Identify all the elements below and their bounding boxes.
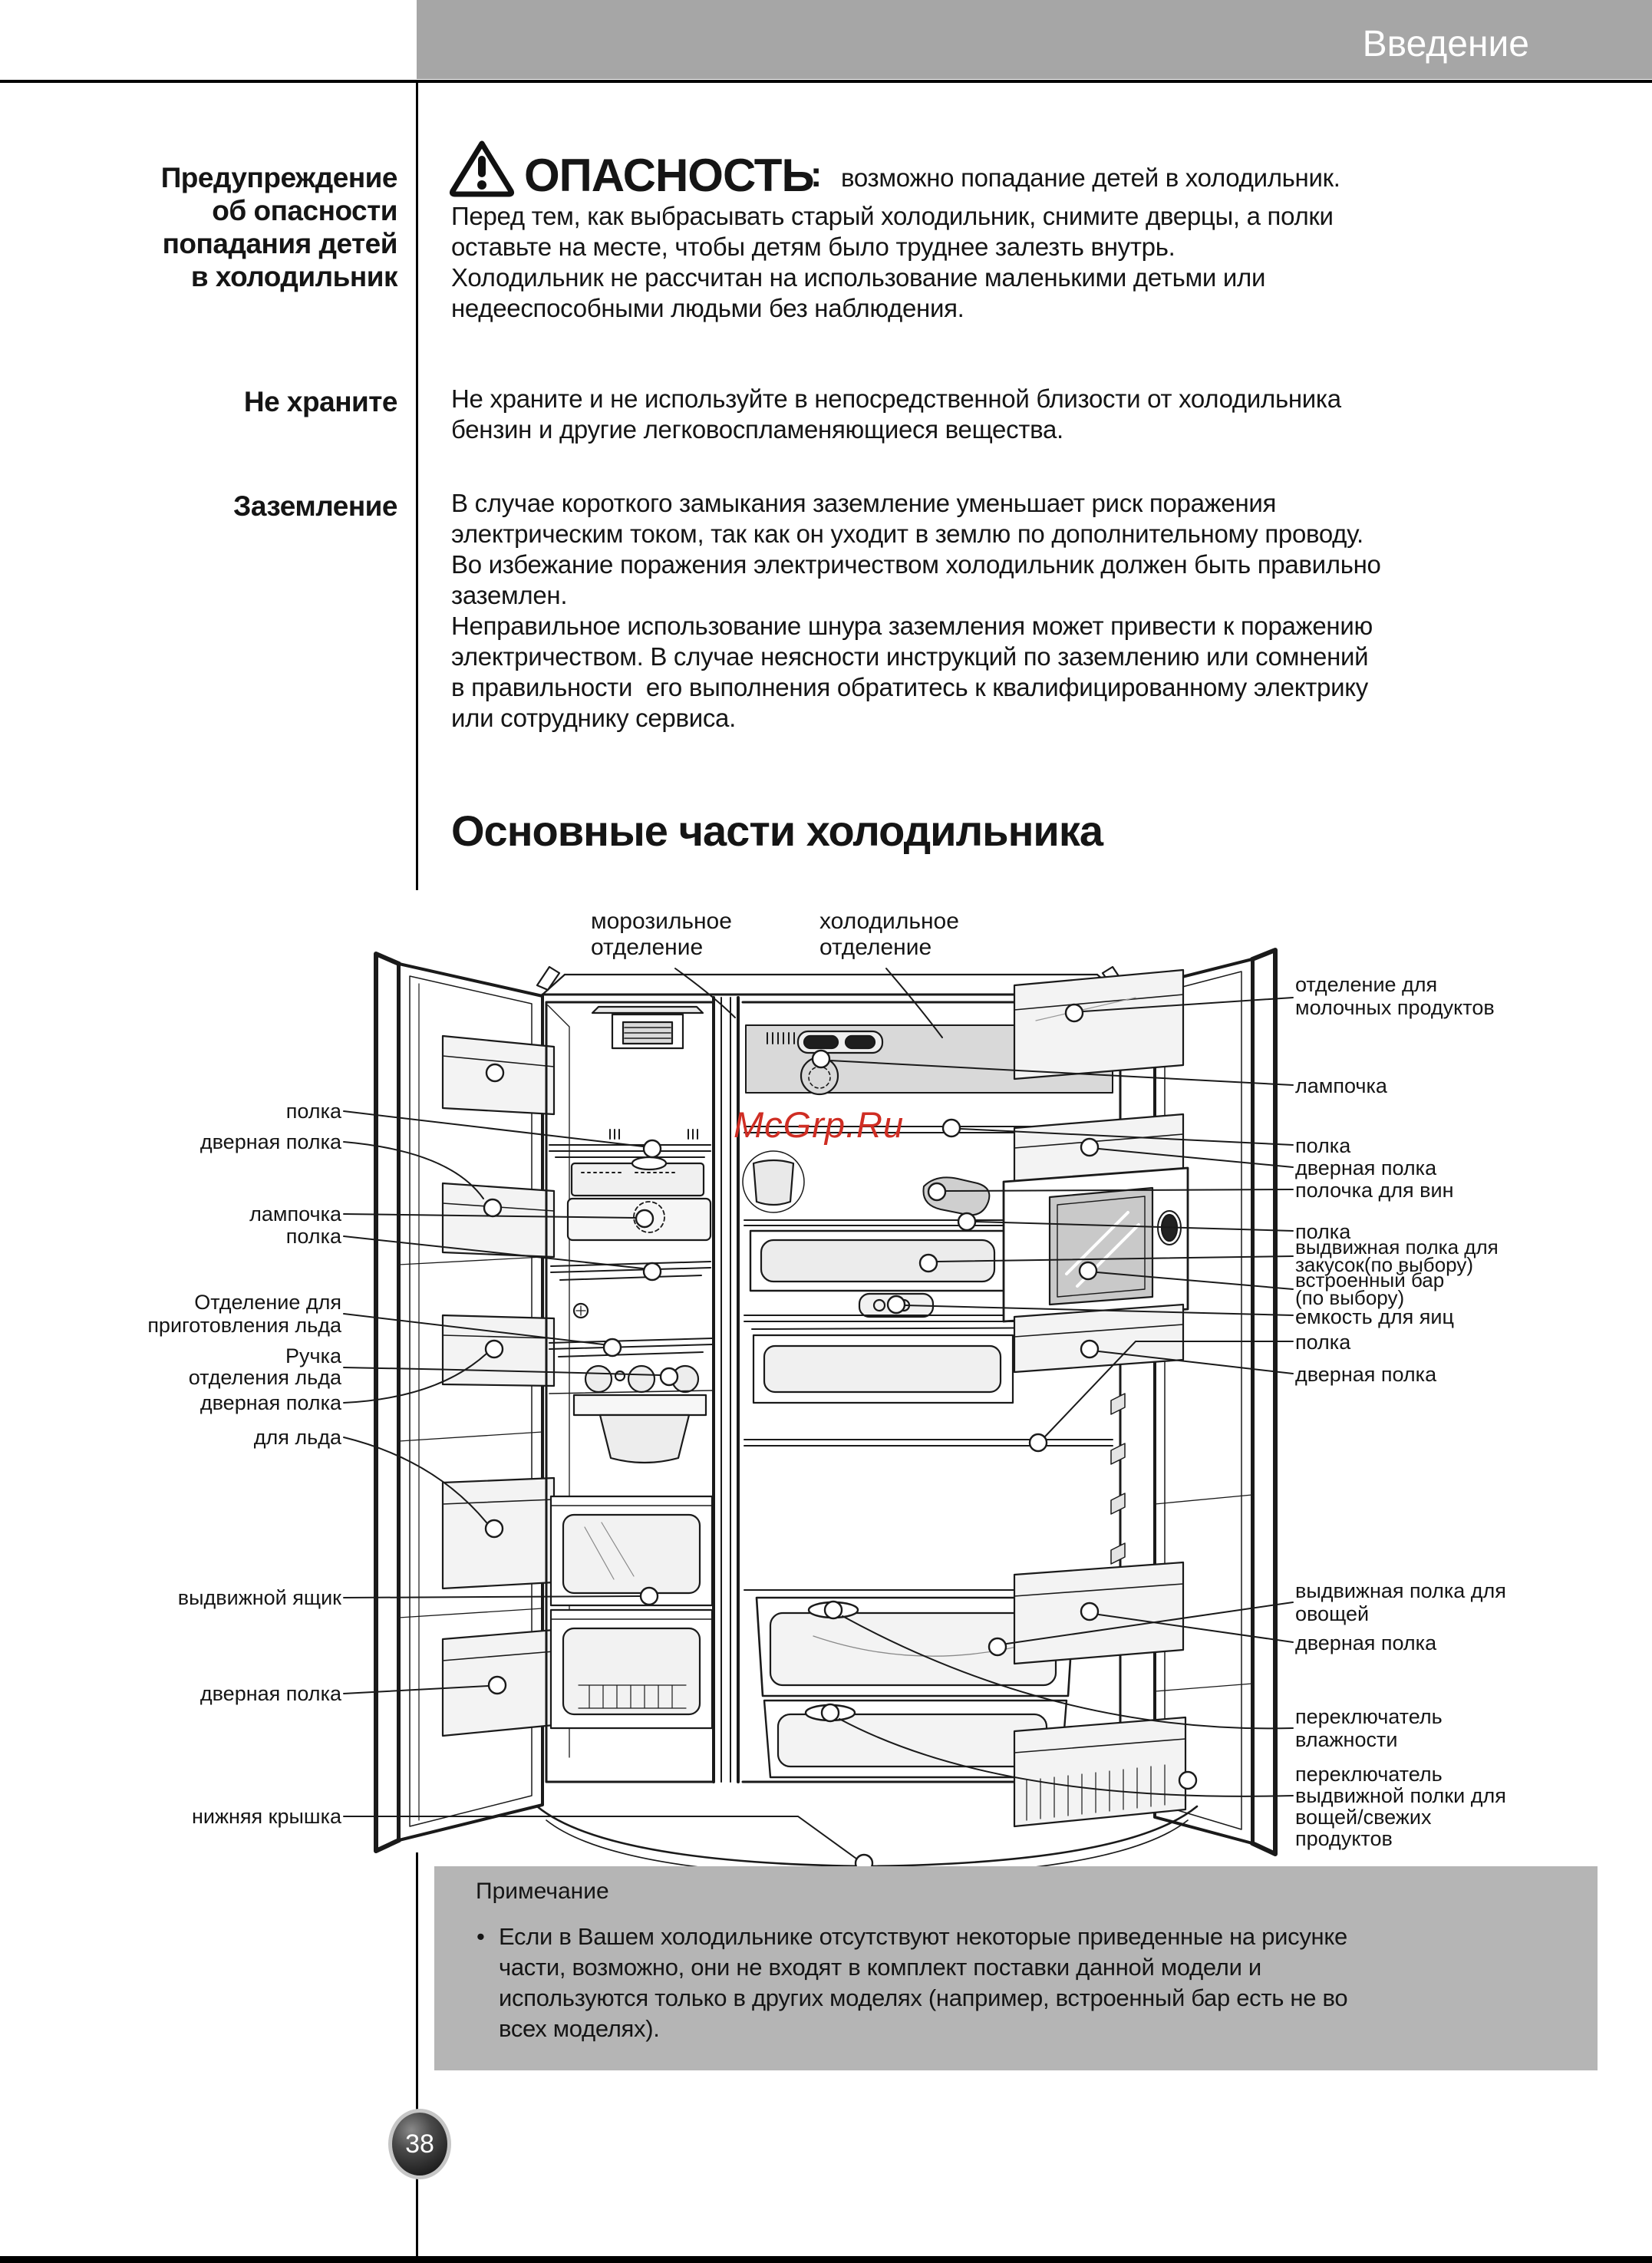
diagram-label-door-shelf: дверная полка	[1295, 1156, 1652, 1179]
diagram-label-wine-shelf: полочка для вин	[1295, 1179, 1652, 1202]
page-number: 38	[405, 2129, 434, 2159]
bottom-rule	[0, 2256, 1652, 2263]
diagram-label-door-shelf: дверная полка	[46, 1391, 341, 1414]
watermark: McGrp.Ru	[734, 1103, 904, 1146]
diagram-label-shelf: полка	[46, 1225, 341, 1248]
diagram-label-door-shelf: дверная полка	[1295, 1363, 1652, 1386]
manual-page: Введение Предупреждение об опасности поп…	[0, 0, 1652, 2263]
diagram-label-shelf: полка	[1295, 1134, 1652, 1157]
diagram-label-shelf: полка	[1295, 1331, 1652, 1354]
note-body: Если в Вашем холодильнике отсутствуют не…	[499, 1922, 1573, 2044]
diagram-label-built-in-bar: встроенный бар (по выбору)	[1295, 1272, 1652, 1307]
diagram-label-ice-handle: Ручка отделения льда	[46, 1345, 341, 1388]
diagram-label-lamp: лампочка	[46, 1202, 341, 1226]
diagram-label-drawer: выдвижной ящик	[46, 1586, 341, 1609]
diagram-label-dairy: отделение для молочных продуктов	[1295, 973, 1652, 1019]
note-bullet: •	[476, 1923, 485, 1951]
diagram-label-veg-shelf: выдвижная полка для овощей	[1295, 1579, 1652, 1625]
page-number-badge: 38	[388, 2109, 451, 2179]
diagram-label-shelf: полка	[46, 1100, 341, 1123]
diagram-label-door-shelf: дверная полка	[46, 1130, 341, 1153]
diagram-label-lamp: лампочка	[1295, 1074, 1652, 1097]
diagram-label-bottom-cover: нижняя крышка	[46, 1805, 341, 1828]
diagram-label-door-shelf: дверная полка	[1295, 1631, 1652, 1654]
note-title: Примечание	[476, 1879, 609, 1905]
diagram-label-door-shelf: дверная полка	[46, 1682, 341, 1705]
column-rule-lower	[416, 1852, 418, 2257]
diagram-label-ice-compartment: Отделение для приготовления льда	[46, 1291, 341, 1337]
diagram-label-for-ice: для льда	[46, 1426, 341, 1449]
diagram-label-humidity-switch: переключатель влажности	[1295, 1705, 1652, 1751]
diagram-label-pullout-switch: переключатель выдвижной полки для вощей/…	[1295, 1763, 1652, 1849]
diagram-label-egg-box: емкость для яиц	[1295, 1305, 1652, 1328]
